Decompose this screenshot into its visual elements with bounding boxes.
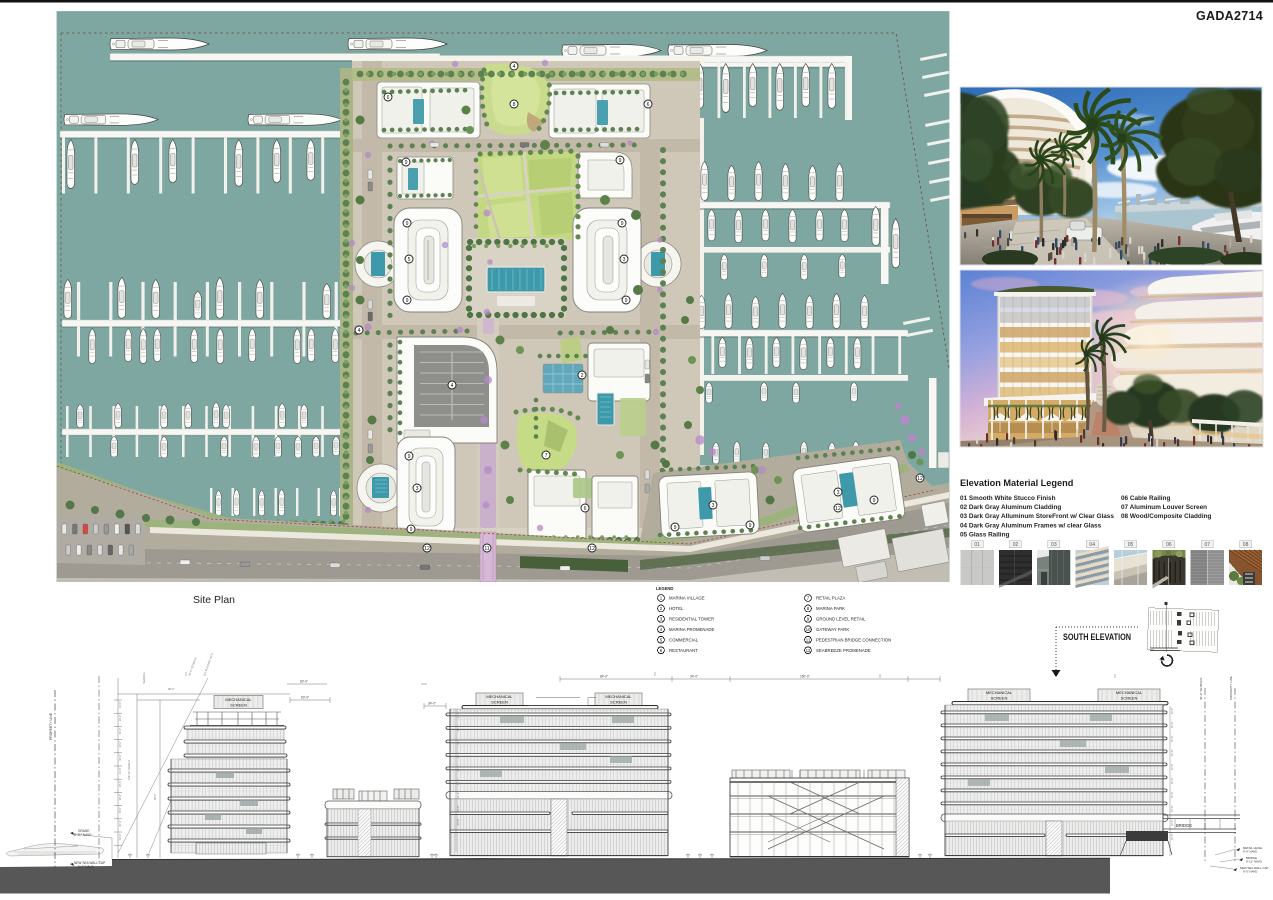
svg-text:4: 4 (513, 64, 516, 70)
svg-text:SCREEN: SCREEN (230, 703, 247, 708)
svg-text:9'-0" NAVD: 9'-0" NAVD (1243, 850, 1257, 854)
svg-text:8'-11" NAVD: 8'-11" NAVD (74, 833, 92, 837)
svg-text:34'-0": 34'-0" (428, 702, 436, 706)
svg-text:60'-0": 60'-0" (300, 680, 308, 684)
svg-text:07: 07 (1204, 542, 1210, 548)
svg-text:SCREEN: SCREEN (491, 700, 508, 705)
svg-text:9: 9 (621, 221, 624, 227)
svg-text:03: 03 (1051, 542, 1057, 548)
svg-text:10'-6": 10'-6" (457, 779, 460, 785)
svg-text:08 Wood/Composite Cladding: 08 Wood/Composite Cladding (1121, 513, 1212, 520)
svg-text:10'-6": 10'-6" (1171, 736, 1174, 742)
svg-text:06: 06 (1166, 542, 1172, 548)
svg-text:RETAIL PLAZA: RETAIL PLAZA (816, 596, 846, 601)
svg-text:RESTAURANT: RESTAURANT (669, 648, 698, 653)
svg-text:10'-6": 10'-6" (1171, 708, 1174, 714)
svg-text:4: 4 (358, 328, 361, 334)
svg-text:MARINA VILLAGE: MARINA VILLAGE (669, 596, 705, 601)
svg-text:6: 6 (584, 506, 587, 512)
svg-text:12: 12 (835, 506, 841, 512)
svg-text:02: 02 (1013, 542, 1019, 548)
svg-text:10'-0": 10'-0" (118, 794, 122, 801)
svg-text:MECHANICAL: MECHANICAL (605, 694, 632, 699)
svg-text:05 Glass Railing: 05 Glass Railing (960, 531, 1009, 538)
svg-text:10'-6": 10'-6" (457, 765, 460, 771)
svg-text:10'-6": 10'-6" (1171, 750, 1174, 756)
svg-text:GATEWAY PARK: GATEWAY PARK (816, 627, 849, 632)
svg-text:PROPERTY LINE: PROPERTY LINE (1229, 676, 1233, 700)
svg-text:SCREEN: SCREEN (610, 700, 627, 705)
svg-text:SCREEN: SCREEN (991, 696, 1008, 701)
svg-text:10'-0": 10'-0" (118, 781, 122, 788)
svg-text:12: 12 (424, 546, 430, 552)
svg-text:10'-6": 10'-6" (457, 712, 460, 718)
svg-text:10'-6": 10'-6" (1171, 834, 1174, 840)
svg-text:10'-6": 10'-6" (1171, 820, 1174, 826)
svg-text:COMMERCIAL: COMMERCIAL (669, 637, 699, 642)
svg-text:11: 11 (484, 546, 489, 552)
svg-text:07 Aluminum Louver Screen: 07 Aluminum Louver Screen (1121, 504, 1207, 511)
svg-text:9: 9 (619, 158, 622, 164)
svg-text:MECHANICAL: MECHANICAL (986, 690, 1013, 695)
svg-text:01 Smooth White Stucco Finish: 01 Smooth White Stucco Finish (960, 495, 1056, 502)
svg-text:9: 9 (405, 160, 408, 166)
svg-text:RESIDENTIAL TOWER: RESIDENTIAL TOWER (669, 617, 714, 622)
svg-text:MECHANICAL: MECHANICAL (1116, 690, 1143, 695)
svg-text:9: 9 (410, 527, 413, 533)
svg-text:10'-0": 10'-0" (118, 741, 122, 748)
svg-text:40'-0" SETBACK: 40'-0" SETBACK (1199, 678, 1203, 700)
svg-text:5: 5 (408, 257, 411, 263)
svg-text:4: 4 (451, 383, 454, 389)
svg-text:9: 9 (674, 525, 677, 531)
svg-text:SOUTH ELEVATION: SOUTH ELEVATION (1063, 632, 1131, 643)
svg-text:10'-0": 10'-0" (118, 767, 122, 774)
svg-text:3: 3 (712, 503, 715, 509)
svg-text:10'-0": 10'-0" (118, 807, 122, 814)
svg-text:10'-0": 10'-0" (118, 701, 122, 708)
svg-text:11: 11 (806, 637, 811, 642)
svg-text:10'-6": 10'-6" (457, 819, 460, 825)
svg-text:9: 9 (406, 221, 409, 227)
svg-text:12: 12 (917, 476, 923, 482)
svg-text:MECHANICAL: MECHANICAL (225, 697, 252, 702)
svg-text:10'-6": 10'-6" (1171, 806, 1174, 812)
svg-text:10'-6": 10'-6" (457, 752, 460, 758)
svg-text:10'-6": 10'-6" (457, 725, 460, 731)
svg-text:10'-0": 10'-0" (118, 833, 122, 840)
svg-text:MARINA PROMENADE: MARINA PROMENADE (669, 627, 714, 632)
svg-text:Site Plan: Site Plan (193, 594, 235, 606)
svg-text:9: 9 (406, 298, 409, 304)
svg-text:160'-0": 160'-0" (800, 675, 810, 679)
svg-text:LEGEND: LEGEND (656, 586, 673, 591)
svg-text:06 Cable Railing: 06 Cable Railing (1121, 495, 1170, 502)
svg-text:12: 12 (589, 546, 595, 552)
svg-text:3: 3 (416, 486, 419, 492)
svg-text:SEAWALL: SEAWALL (142, 671, 146, 684)
svg-text:10'-6": 10'-6" (457, 738, 460, 744)
svg-text:10'-0": 10'-0" (118, 754, 122, 761)
svg-text:04 Dark Gray Aluminum Frames w: 04 Dark Gray Aluminum Frames w/ clear Gl… (960, 522, 1102, 529)
svg-text:01: 01 (974, 542, 980, 548)
svg-text:10'-6": 10'-6" (1171, 722, 1174, 728)
svg-text:12: 12 (806, 648, 811, 653)
svg-text:3: 3 (623, 257, 626, 263)
svg-text:SEABREEZE PROMENADE: SEABREEZE PROMENADE (816, 648, 871, 653)
svg-text:03 Dark Gray Alluminum StoreFr: 03 Dark Gray Alluminum StoreFront w/ Cle… (960, 513, 1114, 520)
svg-text:34'-0": 34'-0" (690, 675, 698, 679)
svg-text:04: 04 (1089, 542, 1095, 548)
svg-text:139'-10" HEIGHT: 139'-10" HEIGHT (127, 760, 131, 780)
svg-text:05: 05 (1128, 542, 1134, 548)
svg-text:60'-0": 60'-0" (301, 696, 309, 700)
svg-text:GADA2714: GADA2714 (1196, 9, 1263, 23)
svg-text:PEDESTRIAN BRIDGE CONNECTION: PEDESTRIAN BRIDGE CONNECTION (816, 637, 891, 642)
svg-text:7: 7 (545, 453, 548, 459)
svg-text:8: 8 (513, 102, 516, 108)
svg-text:PROPERTY LINE: PROPERTY LINE (49, 712, 53, 740)
svg-text:9'-11" NAVD: 9'-11" NAVD (1246, 860, 1262, 864)
svg-text:3: 3 (837, 490, 840, 496)
svg-text:Elevation Material Legend: Elevation Material Legend (960, 478, 1073, 488)
svg-text:10'-6": 10'-6" (457, 792, 460, 798)
svg-text:84'-0": 84'-0" (600, 675, 608, 679)
svg-text:9: 9 (749, 523, 752, 529)
svg-text:6'-0" NAVD: 6'-0" NAVD (78, 865, 95, 869)
svg-text:SCREEN: SCREEN (1121, 696, 1138, 701)
svg-text:98'-0": 98'-0" (168, 687, 175, 691)
svg-text:10'-6": 10'-6" (1171, 792, 1174, 798)
svg-text:MARINA PARK: MARINA PARK (816, 606, 845, 611)
svg-text:2: 2 (581, 373, 584, 379)
svg-text:MECHANICAL: MECHANICAL (486, 694, 513, 699)
svg-text:10: 10 (806, 627, 811, 632)
svg-text:BRIDGE: BRIDGE (1176, 823, 1192, 828)
svg-text:6: 6 (647, 102, 650, 108)
svg-text:10'-6": 10'-6" (1171, 764, 1174, 770)
svg-text:10'-6": 10'-6" (1171, 778, 1174, 784)
svg-text:08: 08 (1243, 542, 1249, 548)
svg-text:HOTEL: HOTEL (669, 606, 684, 611)
svg-text:98'-0": 98'-0" (153, 793, 157, 800)
svg-text:9: 9 (873, 498, 876, 504)
svg-text:10'-0": 10'-0" (118, 728, 122, 735)
svg-text:10'-6": 10'-6" (457, 805, 460, 811)
svg-text:9: 9 (408, 454, 411, 460)
svg-text:10'-0": 10'-0" (118, 715, 122, 722)
svg-text:9: 9 (625, 298, 628, 304)
svg-text:6'-0" NAVD: 6'-0" NAVD (1243, 870, 1257, 874)
svg-text:6: 6 (387, 95, 390, 101)
svg-text:10'-0": 10'-0" (118, 820, 122, 827)
svg-text:GROUND LEVEL RETAIL: GROUND LEVEL RETAIL (816, 617, 866, 622)
svg-text:02 Dark Gray Aluminum Cladding: 02 Dark Gray Aluminum Cladding (960, 504, 1061, 511)
